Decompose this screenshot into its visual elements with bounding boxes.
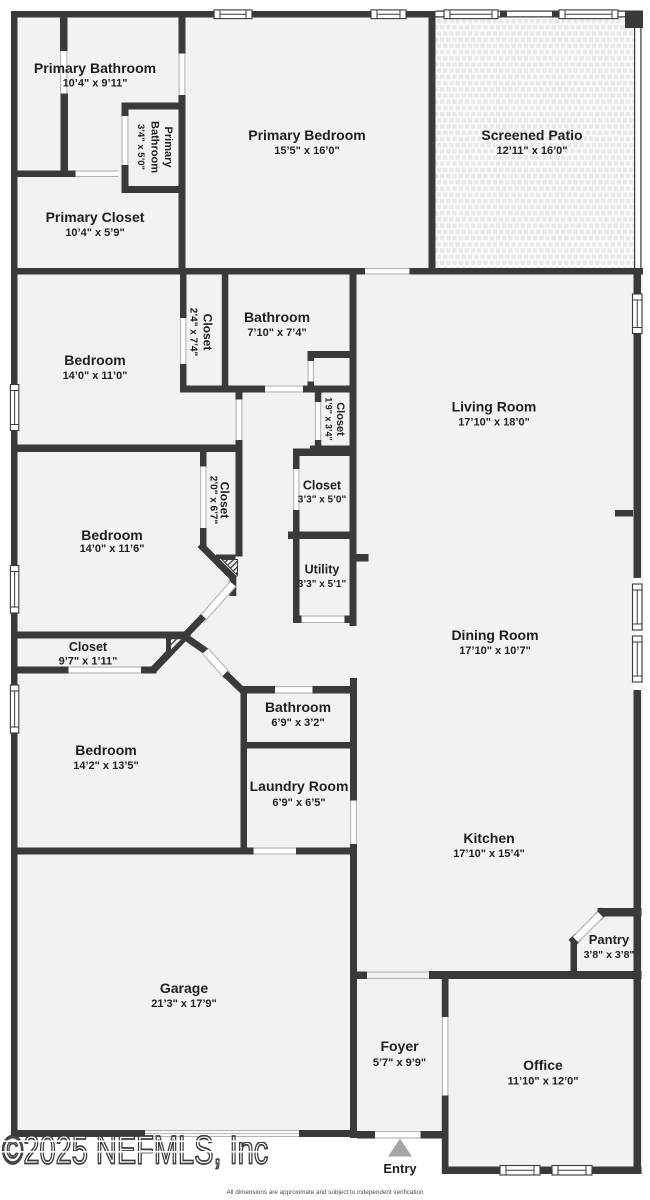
- svg-text:Screened Patio: Screened Patio: [481, 127, 582, 143]
- svg-text:9’7" x 1’11": 9’7" x 1’11": [59, 656, 118, 668]
- svg-text:Foyer: Foyer: [380, 1038, 419, 1054]
- svg-text:3’8" x 3’8": 3’8" x 3’8": [584, 949, 635, 961]
- svg-text:Bathroom: Bathroom: [244, 309, 310, 325]
- svg-text:14’0" x 11’0": 14’0" x 11’0": [63, 370, 128, 382]
- svg-text:10’4" x 5’9": 10’4" x 5’9": [65, 227, 124, 239]
- svg-text:2’4" x 7’4": 2’4" x 7’4": [188, 308, 199, 357]
- svg-text:7’10" x 7’4": 7’10" x 7’4": [247, 327, 306, 339]
- svg-text:2’0" x 6’7": 2’0" x 6’7": [208, 476, 219, 525]
- svg-text:Closet: Closet: [69, 640, 108, 654]
- svg-text:17’10" x 18’0": 17’10" x 18’0": [458, 417, 530, 429]
- svg-text:Office: Office: [523, 1057, 563, 1073]
- svg-text:3’3" x 5’1": 3’3" x 5’1": [298, 579, 347, 590]
- svg-text:Bedroom: Bedroom: [81, 527, 142, 543]
- svg-text:1’9" x 3’4": 1’9" x 3’4": [324, 397, 334, 441]
- svg-text:17’10" x 15’4": 17’10" x 15’4": [453, 848, 525, 860]
- svg-text:Primary Bathroom: Primary Bathroom: [34, 60, 156, 76]
- svg-text:14’2" x 13’5": 14’2" x 13’5": [73, 760, 138, 772]
- svg-text:Primary Closet: Primary Closet: [46, 209, 145, 225]
- svg-text:Bedroom: Bedroom: [75, 742, 136, 758]
- svg-text:Closet: Closet: [334, 402, 346, 436]
- svg-text:3’3" x 5’0": 3’3" x 5’0": [298, 495, 347, 506]
- svg-text:12’11" x 16’0": 12’11" x 16’0": [497, 145, 568, 157]
- svg-text:6’9" x 3’2": 6’9" x 3’2": [271, 717, 324, 729]
- svg-text:17’10" x 10’7": 17’10" x 10’7": [459, 645, 531, 657]
- svg-text:Closet: Closet: [303, 479, 342, 493]
- svg-text:Living Room: Living Room: [452, 399, 537, 415]
- svg-text:All dimensions are approximate: All dimensions are approximate and subje…: [226, 1189, 424, 1196]
- svg-text:Primary: Primary: [162, 127, 174, 169]
- svg-text:Bathroom: Bathroom: [149, 121, 161, 173]
- svg-text:Bathroom: Bathroom: [265, 699, 331, 715]
- svg-text:10’4" x 9’11": 10’4" x 9’11": [63, 78, 128, 90]
- svg-text:21’3" x 17’9": 21’3" x 17’9": [151, 998, 216, 1010]
- svg-text:3’4" x 5’0": 3’4" x 5’0": [135, 124, 146, 170]
- svg-text:Primary Bedroom: Primary Bedroom: [248, 127, 365, 143]
- svg-text:Bedroom: Bedroom: [64, 352, 125, 368]
- svg-text:Closet: Closet: [218, 482, 232, 519]
- svg-text:Kitchen: Kitchen: [463, 830, 514, 846]
- svg-text:5’7" x 9’9": 5’7" x 9’9": [373, 1057, 426, 1069]
- svg-text:15’5" x 16’0": 15’5" x 16’0": [274, 145, 339, 157]
- svg-text:Laundry Room: Laundry Room: [250, 778, 349, 794]
- svg-text:Closet: Closet: [201, 314, 215, 351]
- svg-text:©2025 NEFMLS, Inc: ©2025 NEFMLS, Inc: [2, 1128, 268, 1173]
- svg-text:14’0" x 11’6": 14’0" x 11’6": [80, 543, 145, 555]
- svg-text:Dining Room: Dining Room: [451, 627, 538, 643]
- svg-text:6’9" x 6’5": 6’9" x 6’5": [272, 797, 325, 809]
- svg-text:Utility: Utility: [305, 563, 340, 577]
- svg-text:11’10" x 12’0": 11’10" x 12’0": [508, 1076, 579, 1088]
- svg-text:Entry: Entry: [383, 1161, 417, 1176]
- svg-text:Garage: Garage: [160, 980, 208, 996]
- svg-text:Pantry: Pantry: [589, 932, 630, 947]
